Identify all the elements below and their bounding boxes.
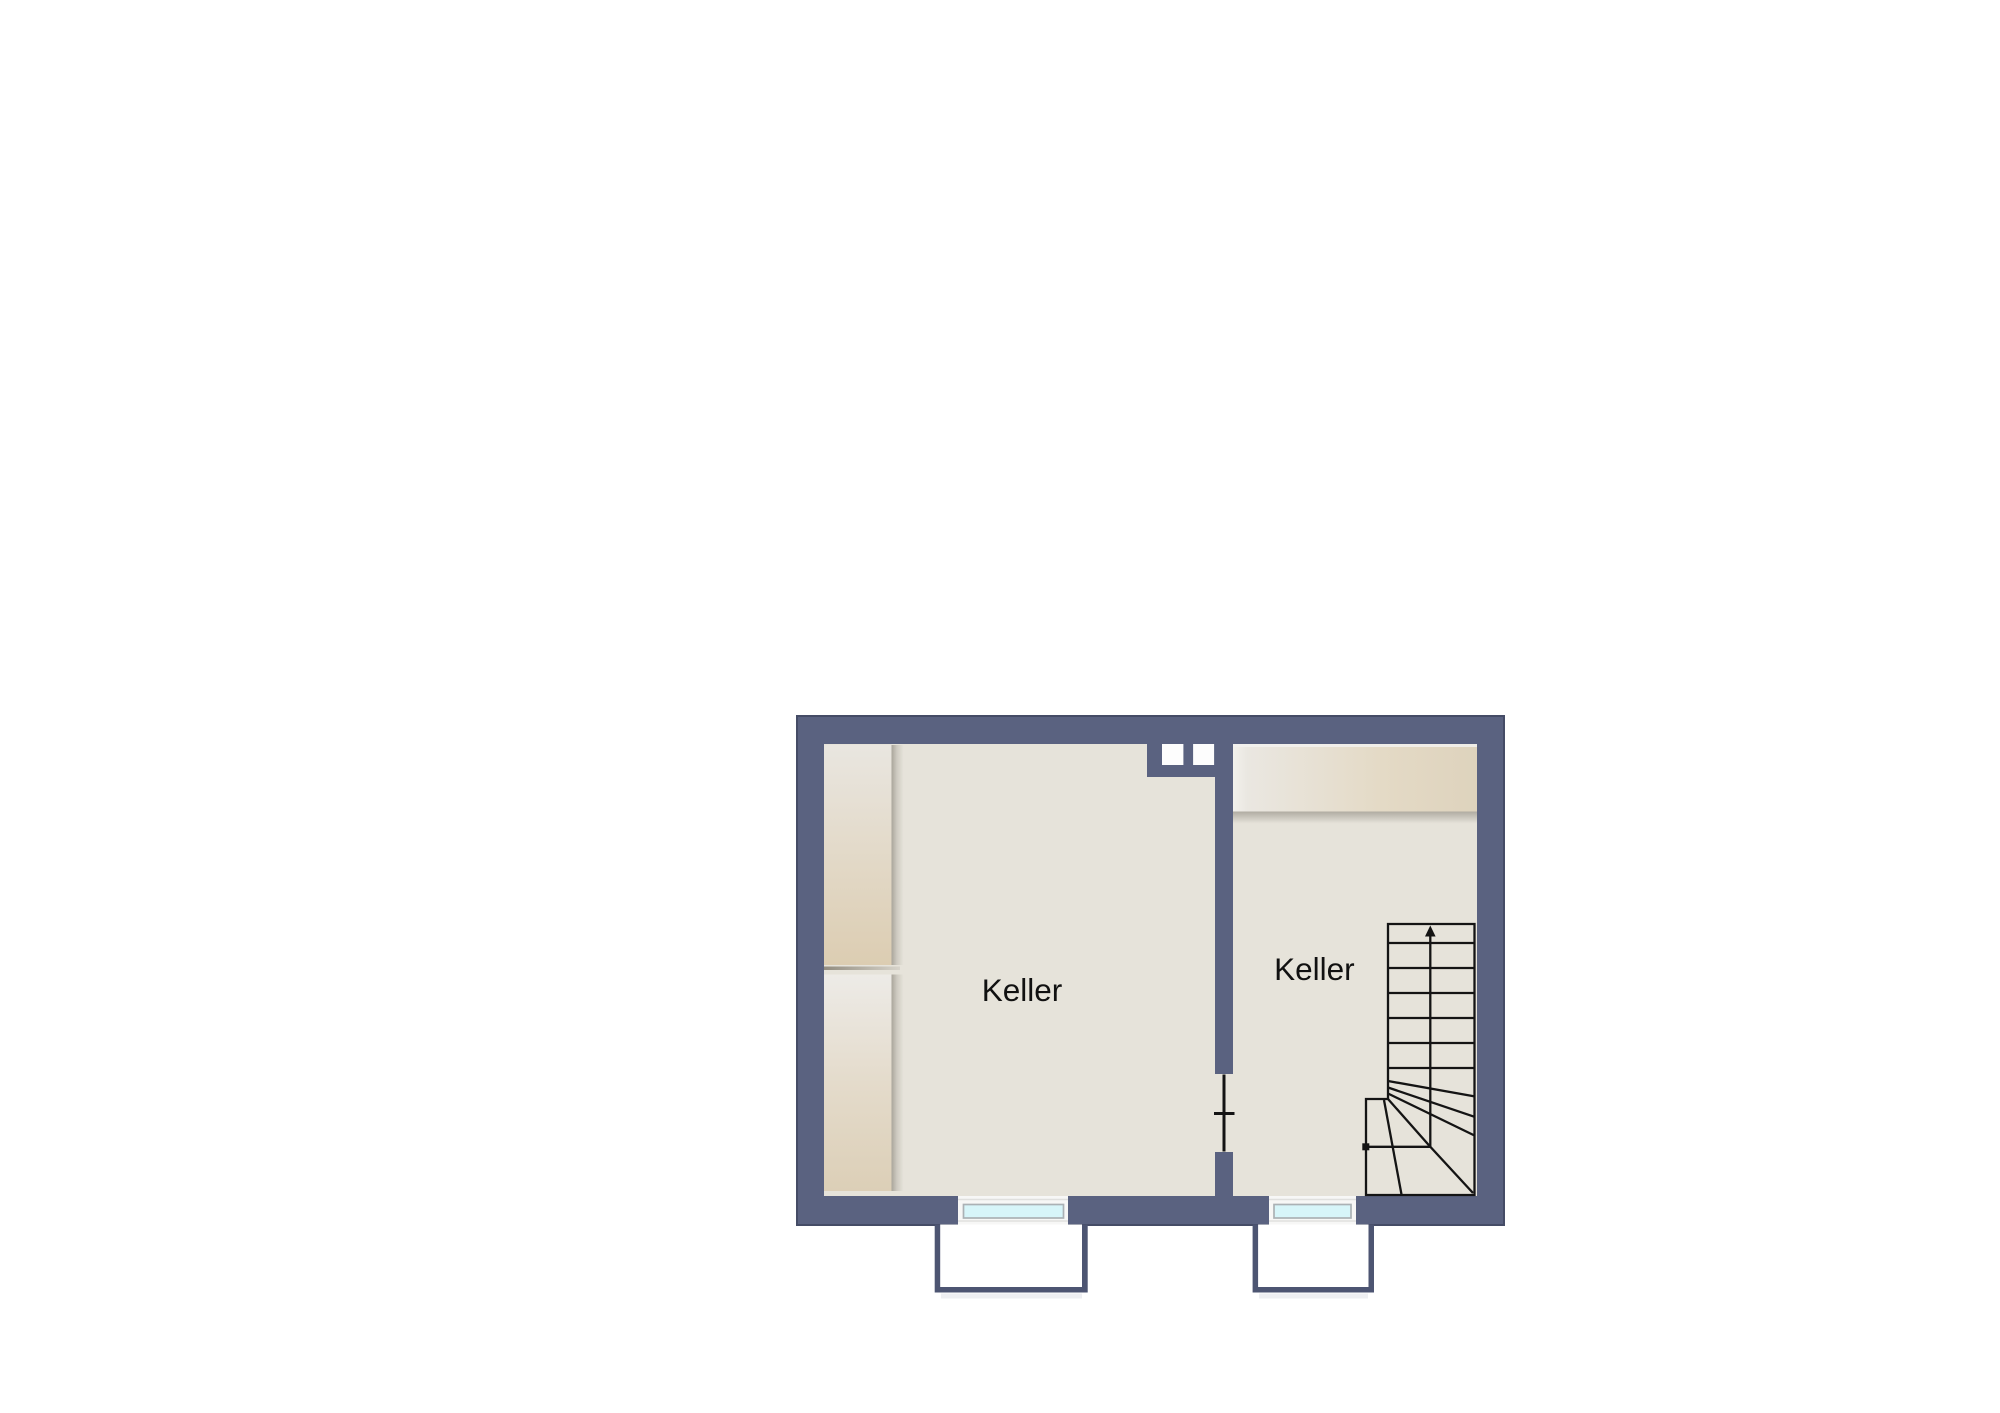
svg-text:Keller: Keller — [1274, 951, 1355, 987]
svg-text:Keller: Keller — [982, 972, 1063, 1008]
